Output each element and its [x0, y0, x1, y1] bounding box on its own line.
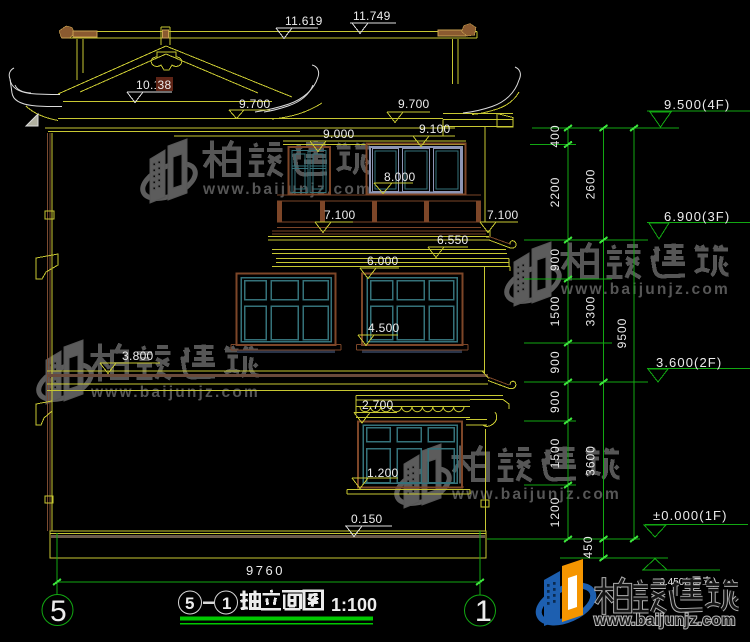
svg-text:±0.000(1F): ±0.000(1F)	[653, 508, 728, 523]
svg-text:5: 5	[50, 595, 67, 628]
svg-text:38: 38	[158, 78, 172, 92]
svg-text:1500: 1500	[548, 438, 562, 469]
svg-text:9760: 9760	[246, 563, 285, 578]
svg-text:400: 400	[548, 124, 562, 147]
svg-text:1500: 1500	[548, 296, 562, 327]
svg-text:7.100: 7.100	[324, 208, 356, 222]
svg-text:4.500: 4.500	[368, 321, 400, 335]
svg-text:www.baijunjz.com: www.baijunjz.com	[451, 486, 621, 503]
svg-text:6.000: 6.000	[367, 254, 399, 268]
svg-text:9500: 9500	[615, 318, 629, 349]
svg-text:1.200: 1.200	[367, 466, 399, 480]
svg-text:www.baijunjz.com: www.baijunjz.com	[593, 612, 736, 629]
svg-text:1200: 1200	[548, 497, 562, 528]
svg-text:6.900(3F): 6.900(3F)	[664, 209, 730, 224]
svg-text:5: 5	[185, 594, 194, 613]
svg-text:2.700: 2.700	[362, 398, 394, 412]
svg-text:9.500(4F): 9.500(4F)	[664, 97, 730, 112]
svg-text:9.700: 9.700	[398, 97, 430, 111]
svg-text:0.150: 0.150	[351, 512, 383, 526]
svg-text:3.600(2F): 3.600(2F)	[656, 355, 722, 370]
svg-text:9.100: 9.100	[419, 122, 451, 136]
svg-text:www.baijunjz.com: www.baijunjz.com	[90, 384, 260, 401]
svg-text:9.700: 9.700	[239, 97, 271, 111]
svg-text:2600: 2600	[584, 169, 598, 200]
svg-text:3.800: 3.800	[122, 349, 154, 363]
svg-text:900: 900	[548, 390, 562, 413]
svg-text:1: 1	[475, 595, 492, 628]
svg-text:3300: 3300	[584, 296, 598, 327]
svg-text:9.000: 9.000	[323, 127, 355, 141]
svg-text:8.000: 8.000	[384, 170, 416, 184]
svg-text:450: 450	[581, 535, 595, 558]
svg-text:11.749: 11.749	[353, 9, 391, 23]
svg-text:www.baijunjz.com: www.baijunjz.com	[560, 281, 730, 298]
svg-text:7.100: 7.100	[487, 208, 519, 222]
svg-text:3600: 3600	[584, 445, 598, 476]
svg-text:1: 1	[222, 594, 231, 613]
svg-text:6.550: 6.550	[437, 233, 469, 247]
svg-text:11.619: 11.619	[285, 14, 323, 28]
svg-text:900: 900	[548, 350, 562, 373]
svg-text:900: 900	[548, 248, 562, 271]
svg-text:1:100: 1:100	[331, 595, 377, 615]
svg-text:2200: 2200	[548, 177, 562, 208]
